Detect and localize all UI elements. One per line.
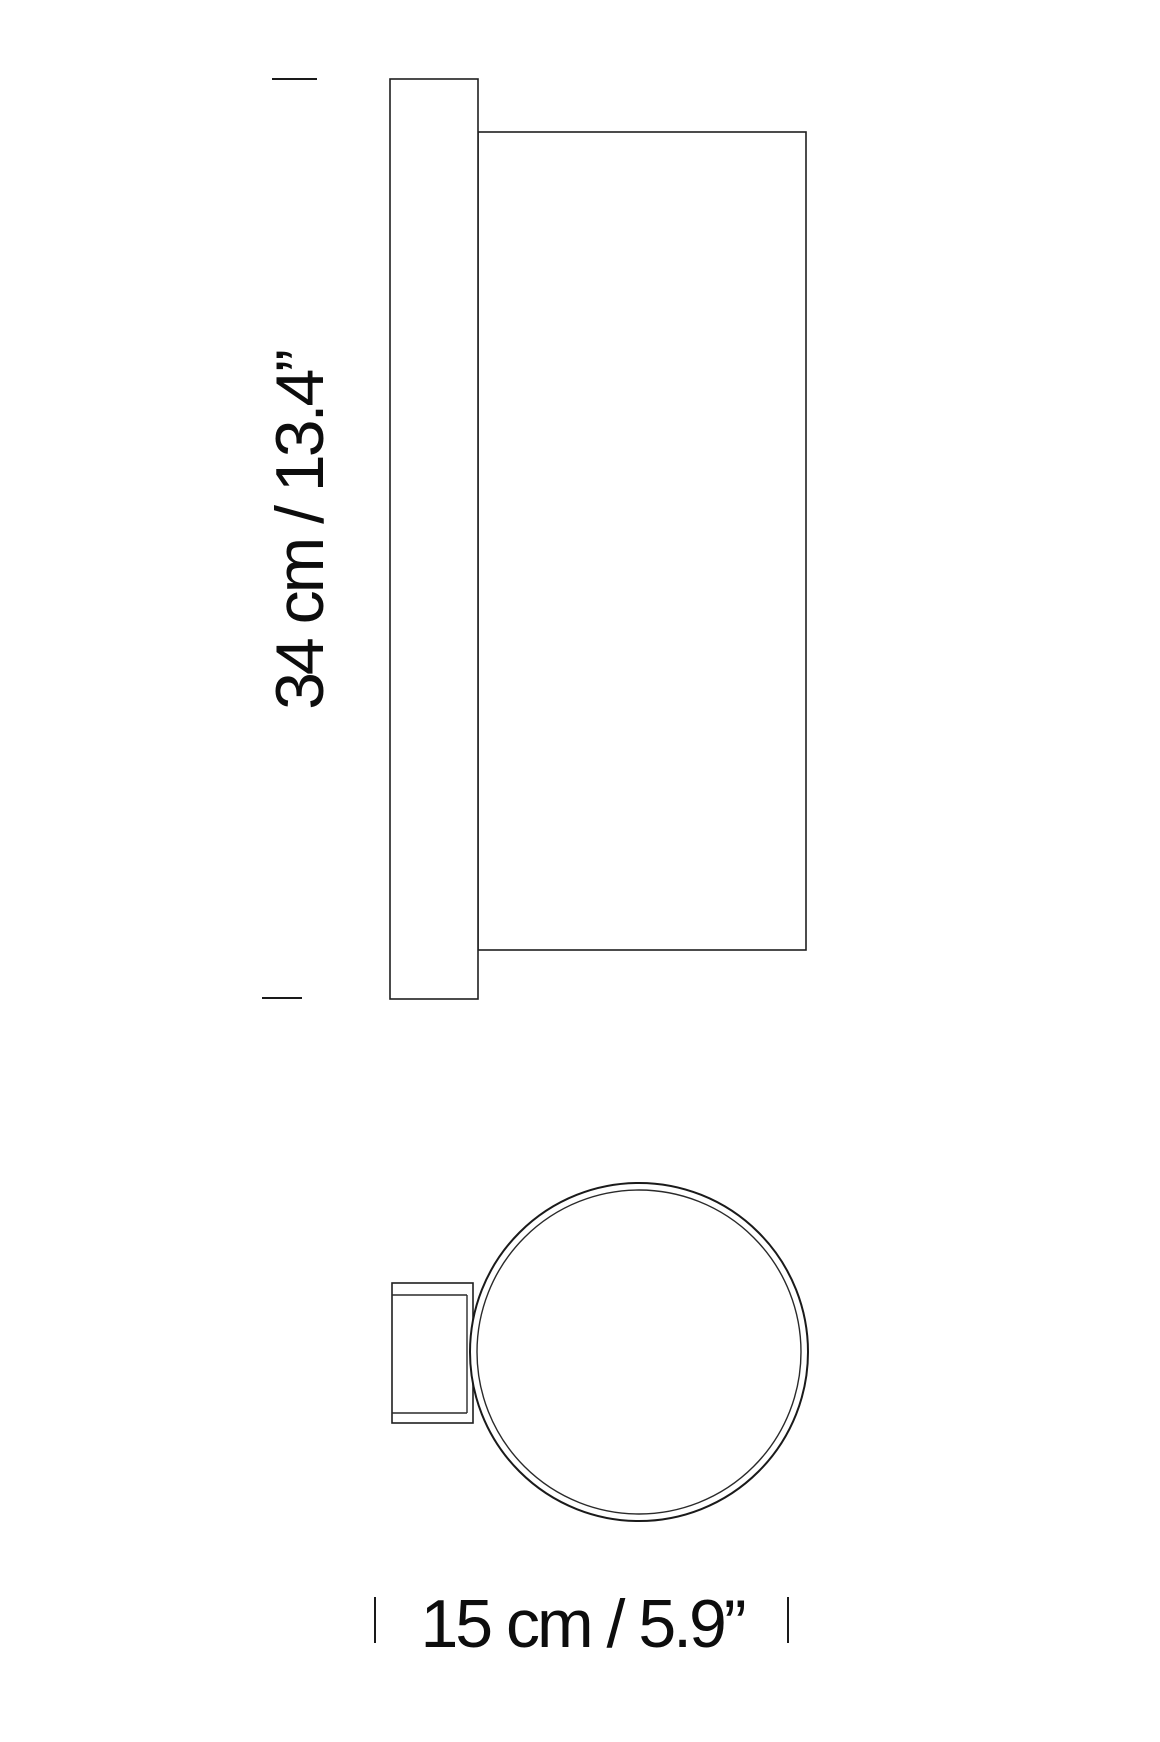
bracket-plan	[392, 1283, 473, 1423]
width-dimension-label: 15 cm / 5.9”	[420, 1586, 744, 1662]
lamp-technical-drawing: 34 cm / 13.4” 15 cm / 5.9”	[0, 0, 1160, 1742]
height-dimension-label: 34 cm / 13.4”	[262, 351, 338, 710]
dimension-drawing-page: 34 cm / 13.4” 15 cm / 5.9”	[0, 0, 1160, 1742]
backplate-side-rect	[390, 79, 478, 999]
shade-side-rect	[478, 132, 806, 950]
side-view: 34 cm / 13.4”	[262, 79, 806, 999]
top-view: 15 cm / 5.9”	[375, 1183, 808, 1662]
shade-plan-outer-circle	[470, 1183, 808, 1521]
bracket-outer-rect	[392, 1283, 473, 1423]
